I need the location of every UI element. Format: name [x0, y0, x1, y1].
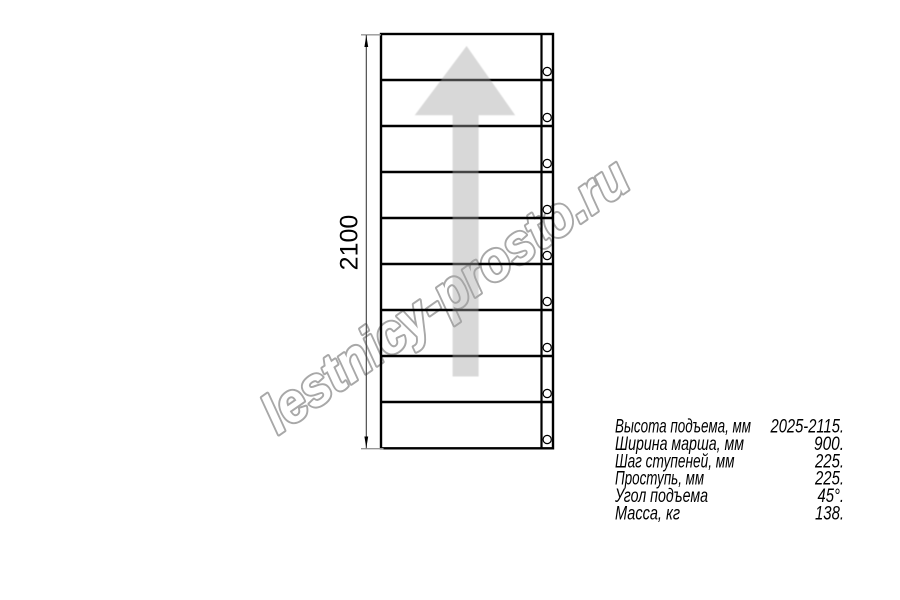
svg-text:138.: 138.	[815, 504, 844, 525]
svg-text:Масса, кг: Масса, кг	[615, 504, 680, 525]
svg-text:2100: 2100	[336, 215, 364, 271]
